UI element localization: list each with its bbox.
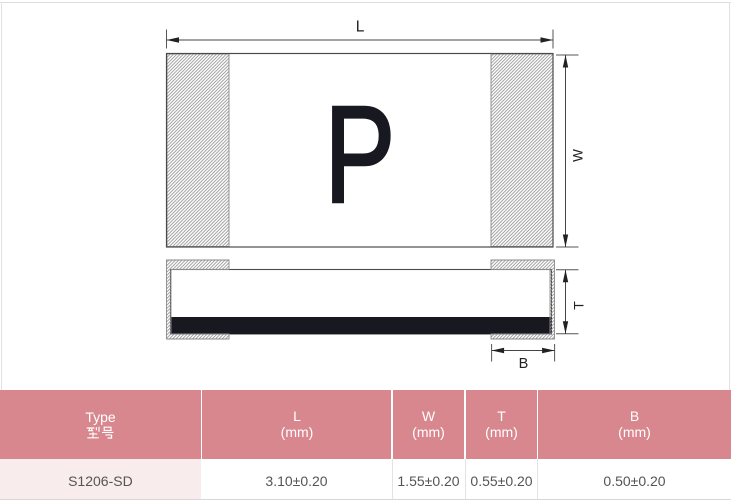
svg-text:B: B [519,356,529,372]
svg-text:T: T [570,301,586,310]
svg-text:P: P [324,79,395,233]
svg-text:W: W [571,149,586,162]
svg-text:L: L [356,19,365,36]
